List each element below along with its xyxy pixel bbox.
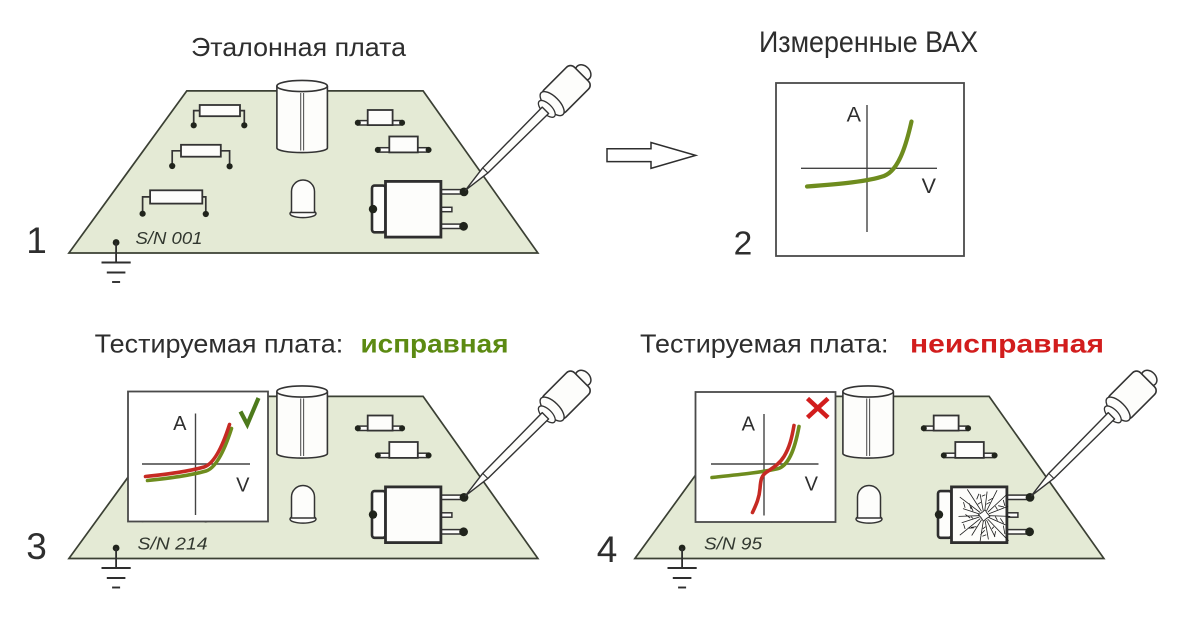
svg-text:S/N 001: S/N 001	[136, 228, 203, 248]
svg-text:4: 4	[597, 529, 618, 570]
svg-text:3: 3	[26, 526, 47, 567]
svg-text:V: V	[805, 474, 819, 496]
svg-text:неисправная: неисправная	[910, 329, 1104, 359]
svg-text:A: A	[847, 103, 862, 127]
svg-text:V: V	[922, 174, 937, 198]
svg-text:Тестируемая плата:: Тестируемая плата:	[95, 329, 343, 359]
svg-text:2: 2	[734, 226, 753, 263]
svg-text:1: 1	[26, 220, 47, 261]
svg-text:V: V	[236, 475, 250, 497]
svg-text:Эталонная плата: Эталонная плата	[191, 32, 407, 62]
svg-text:Тестируемая плата:: Тестируемая плата:	[640, 329, 889, 359]
svg-text:исправная: исправная	[361, 329, 509, 359]
svg-text:S/N 95: S/N 95	[704, 534, 762, 554]
svg-text:Измеренные ВАХ: Измеренные ВАХ	[759, 26, 978, 59]
svg-text:A: A	[742, 414, 756, 436]
svg-text:A: A	[173, 413, 187, 435]
svg-text:S/N 214: S/N 214	[138, 534, 208, 554]
